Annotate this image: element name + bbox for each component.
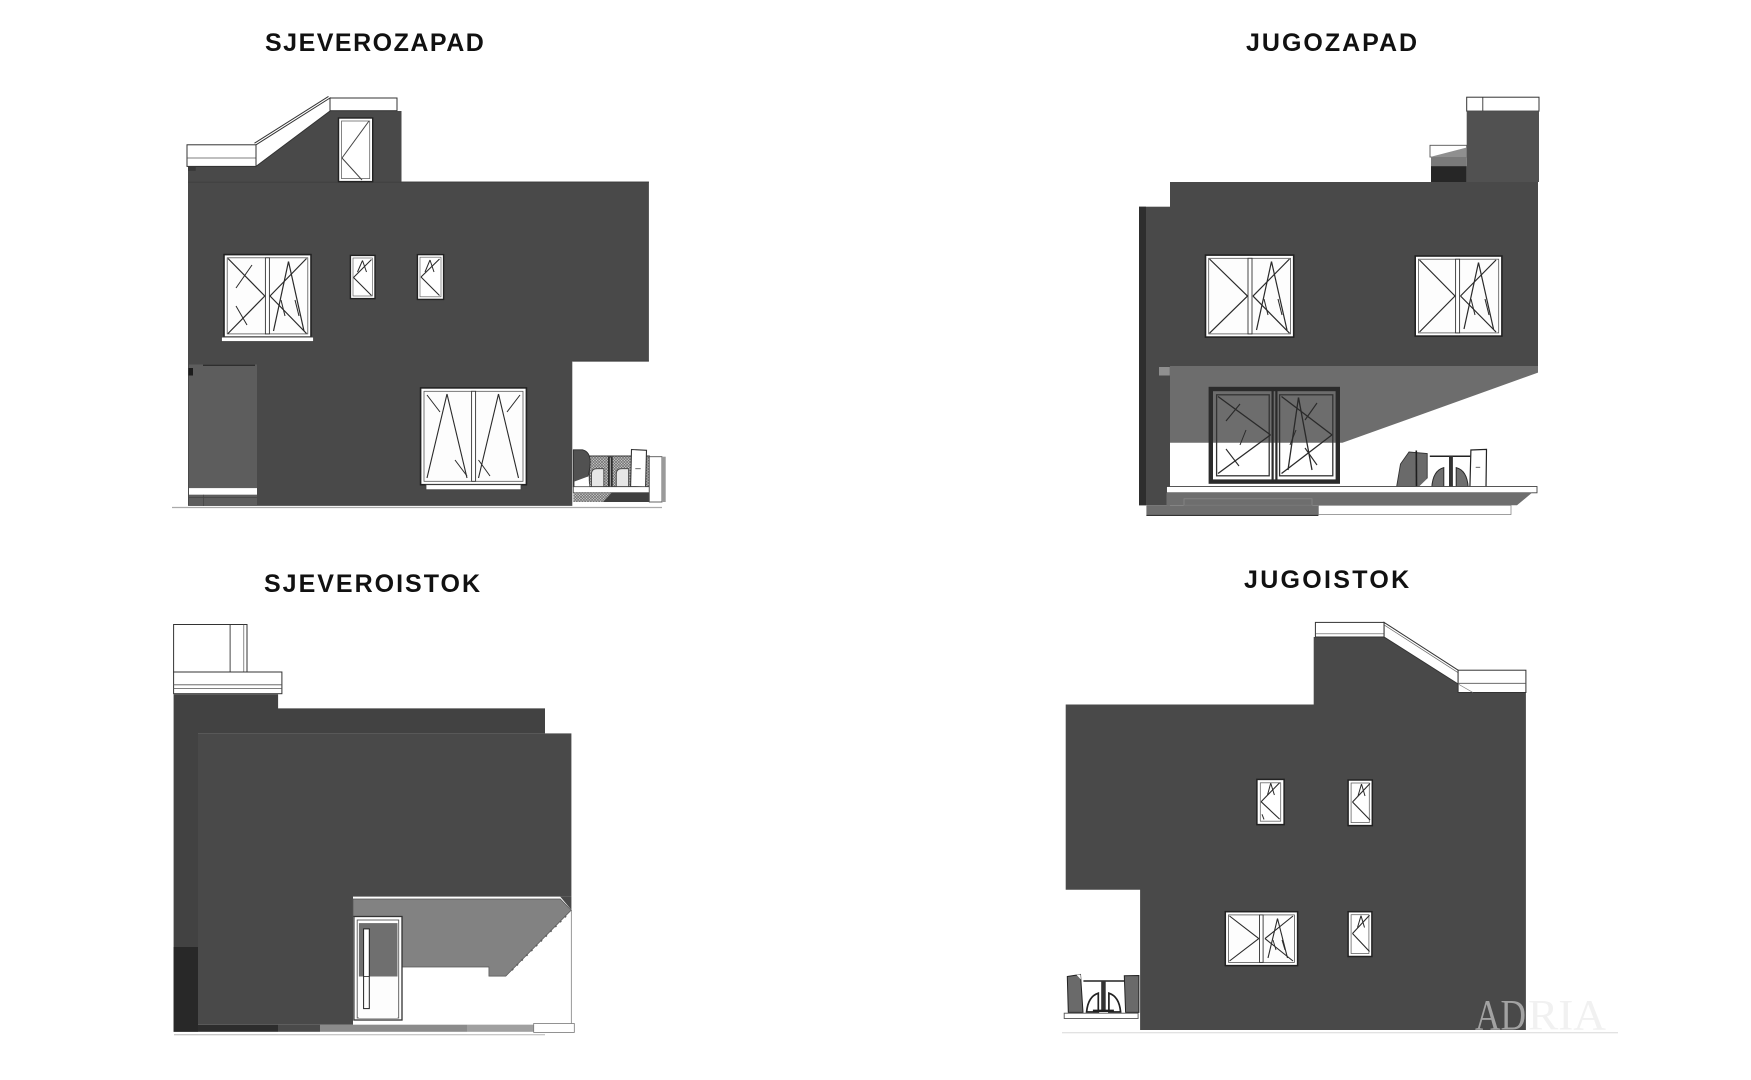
svg-text:RIA: RIA: [1528, 993, 1606, 1040]
svg-text:AD: AD: [1475, 993, 1526, 1040]
